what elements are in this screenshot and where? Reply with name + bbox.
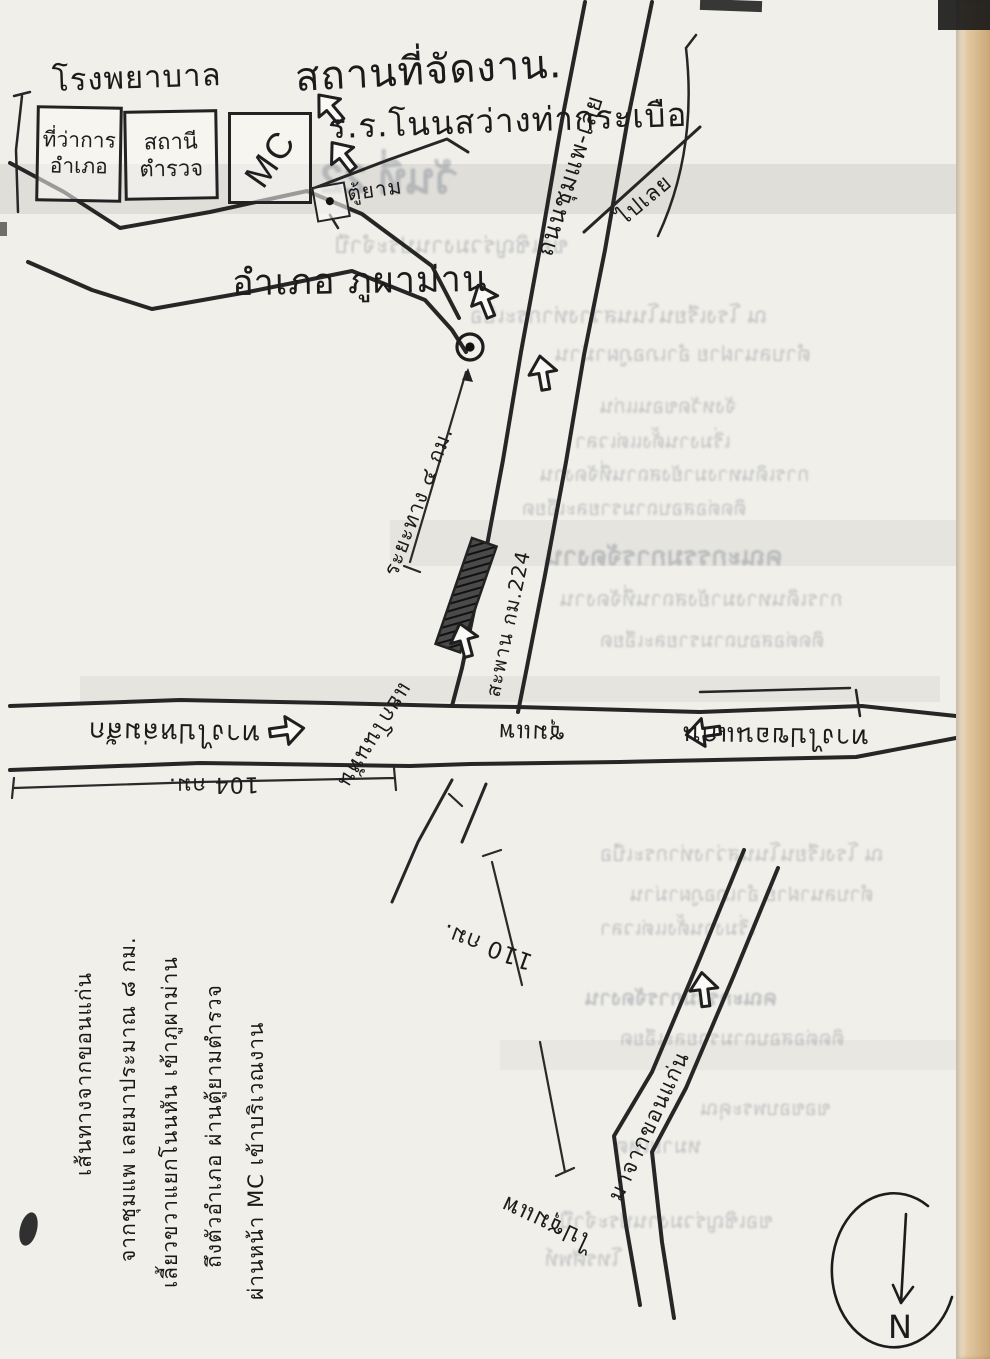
- distance-104-label: 104 กม.: [168, 767, 259, 804]
- arrowhead: [462, 368, 473, 382]
- left-direction-label: ทางไปหล่มสัก: [88, 711, 261, 757]
- police-line2: ตำรวจ: [139, 154, 203, 183]
- scanned-map-page: วันที่ 22 ขอเชิญร่วมงานประจำปี ณ โรงเรีย…: [0, 0, 990, 1359]
- district-name-label: อำเภอ ภูผาม่าน: [232, 250, 488, 311]
- right-direction-label: ทางไปขอนแก่น: [682, 714, 869, 758]
- district-office-box: ที่ว่าการ อำเภอ: [35, 105, 123, 202]
- compass-north-label: N: [888, 1308, 913, 1346]
- district-office-line1: ที่ว่าการ: [42, 127, 116, 155]
- scan-artifact: [700, 0, 762, 12]
- note-line: เลี้ยวขวาแยกโนนหัน เข้าภูผาม่าน: [154, 956, 187, 1288]
- police-station-box: สถานี ตำรวจ: [123, 109, 219, 201]
- guard-post-dot: [325, 197, 334, 206]
- note-line: ถึงตัวอำเภอ ผ่านตู้ยามตำรวจ: [198, 984, 231, 1268]
- hospital-label: โรงพยาบาล: [51, 49, 222, 105]
- district-office-line2: อำเภอ: [50, 153, 108, 180]
- mc-label: MC: [234, 121, 305, 196]
- note-line: เส้นทางจากขอนแก่น: [68, 972, 101, 1176]
- guard-post-box: [311, 181, 351, 222]
- note-line: จากชุมแพ เลยมาประมาณ ๘ กม.: [112, 936, 145, 1262]
- scan-artifact: [938, 0, 990, 30]
- police-line1: สถานี: [143, 127, 198, 155]
- page-edge-shadow: [956, 0, 990, 1359]
- mc-box: MC: [228, 112, 312, 204]
- scan-artifact: [0, 222, 7, 236]
- chumphae-label: ชุมแพ: [497, 713, 566, 754]
- note-line: ผ่านหน้า MC เข้าบริเวณงาน: [240, 1022, 273, 1300]
